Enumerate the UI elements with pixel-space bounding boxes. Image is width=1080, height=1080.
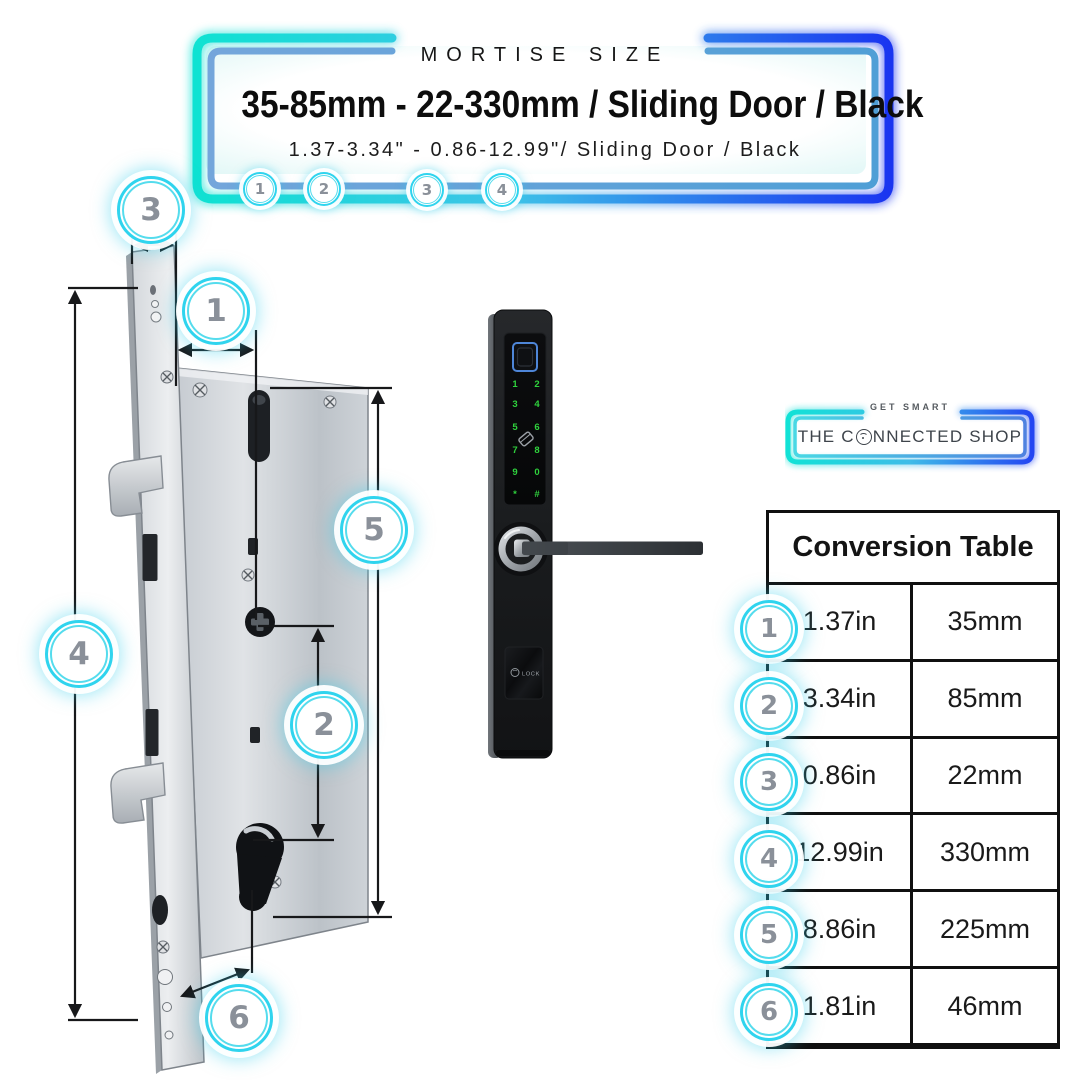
faceplate-screw [161,371,173,383]
plate-bottom-shadow [496,750,550,756]
diagram-callout-1: 1 [182,277,250,345]
table-badge-3: 3 [740,753,798,811]
hook-slot-lower [146,709,159,756]
keypad-key-2: 2 [534,379,539,390]
diagram-callout-6: 6 [205,984,273,1052]
faceplate-screw-bottom [157,941,169,953]
header-badge-2: 2 [307,172,341,206]
lock-branding-panel: LOCK [505,647,543,699]
wifi-o-icon [856,429,872,445]
page-subtitle: 1.37-3.34" - 0.86-12.99"/ Sliding Door /… [200,139,890,162]
table-row: 3.34in 85mm [769,662,1057,739]
mm-cell: 46mm [913,969,1057,1043]
keypad-key-7: 7 [512,445,517,456]
diagram-callout-5: 5 [340,496,408,564]
lock-body [173,368,368,958]
logo-tagline: GET SMART [810,402,1010,412]
keypad-key-1: 1 [512,379,518,390]
fingerprint-sensor-icon [513,343,537,371]
mm-cell: 330mm [913,815,1057,889]
diagram-callout-3: 3 [117,176,185,244]
logo-name-part2: NNECTED SHOP [873,427,1022,447]
table-badge-5: 5 [740,906,798,964]
header-badge-3: 3 [410,173,444,207]
header-eyebrow: MORTISE SIZE [345,44,745,67]
diagram-callout-4: 4 [45,620,113,688]
mm-cell: 35mm [913,585,1057,659]
mortise-size-infographic: MORTISE SIZE 35-85mm - 22-330mm / Slidin… [0,0,1080,1080]
table-badge-1: 1 [740,600,798,658]
mm-cell: 22mm [913,739,1057,813]
header-badge-1: 1 [243,172,277,206]
keypad-key-star: * [513,489,517,500]
table-badge-6: 6 [740,983,798,1041]
keypad-key-5: 5 [512,422,518,433]
keypad-key-9: 9 [512,467,517,478]
table-badge-4: 4 [740,830,798,888]
mm-cell: 85mm [913,662,1057,736]
table-row: 0.86in 22mm [769,739,1057,816]
logo-name: THE CNNECTED SHOP [795,427,1025,447]
mm-cell: 225mm [913,892,1057,966]
header-badge-4: 4 [485,173,519,207]
spindle-hole [245,607,275,637]
keypad-key-3: 3 [512,399,517,410]
keypad-key-4: 4 [534,399,540,410]
keypad-key-6: 6 [534,422,539,433]
hook-slot-upper [143,534,158,581]
table-row: 1.37in 35mm [769,585,1057,662]
lock-brand-label: LOCK [522,672,540,678]
table-badge-2: 2 [740,677,798,735]
table-row: 1.81in 46mm [769,969,1057,1046]
conversion-table-title: Conversion Table [769,513,1057,585]
logo-name-part1: THE C [798,427,855,447]
keypad-key-0: 0 [534,467,539,478]
table-row: 12.99in 330mm [769,815,1057,892]
page-title: 35-85mm - 22-330mm / Sliding Door / Blac… [241,84,848,127]
keypad-key-8: 8 [534,445,539,456]
keypad-key-hash: # [534,489,540,500]
table-row: 8.86in 225mm [769,892,1057,969]
smart-lock-product-photo: 1 2 3 4 5 6 7 8 9 0 * # [478,300,718,780]
diagram-callout-2: 2 [290,691,358,759]
conversion-table: Conversion Table 1.37in 35mm 3.34in 85mm… [766,510,1060,1049]
